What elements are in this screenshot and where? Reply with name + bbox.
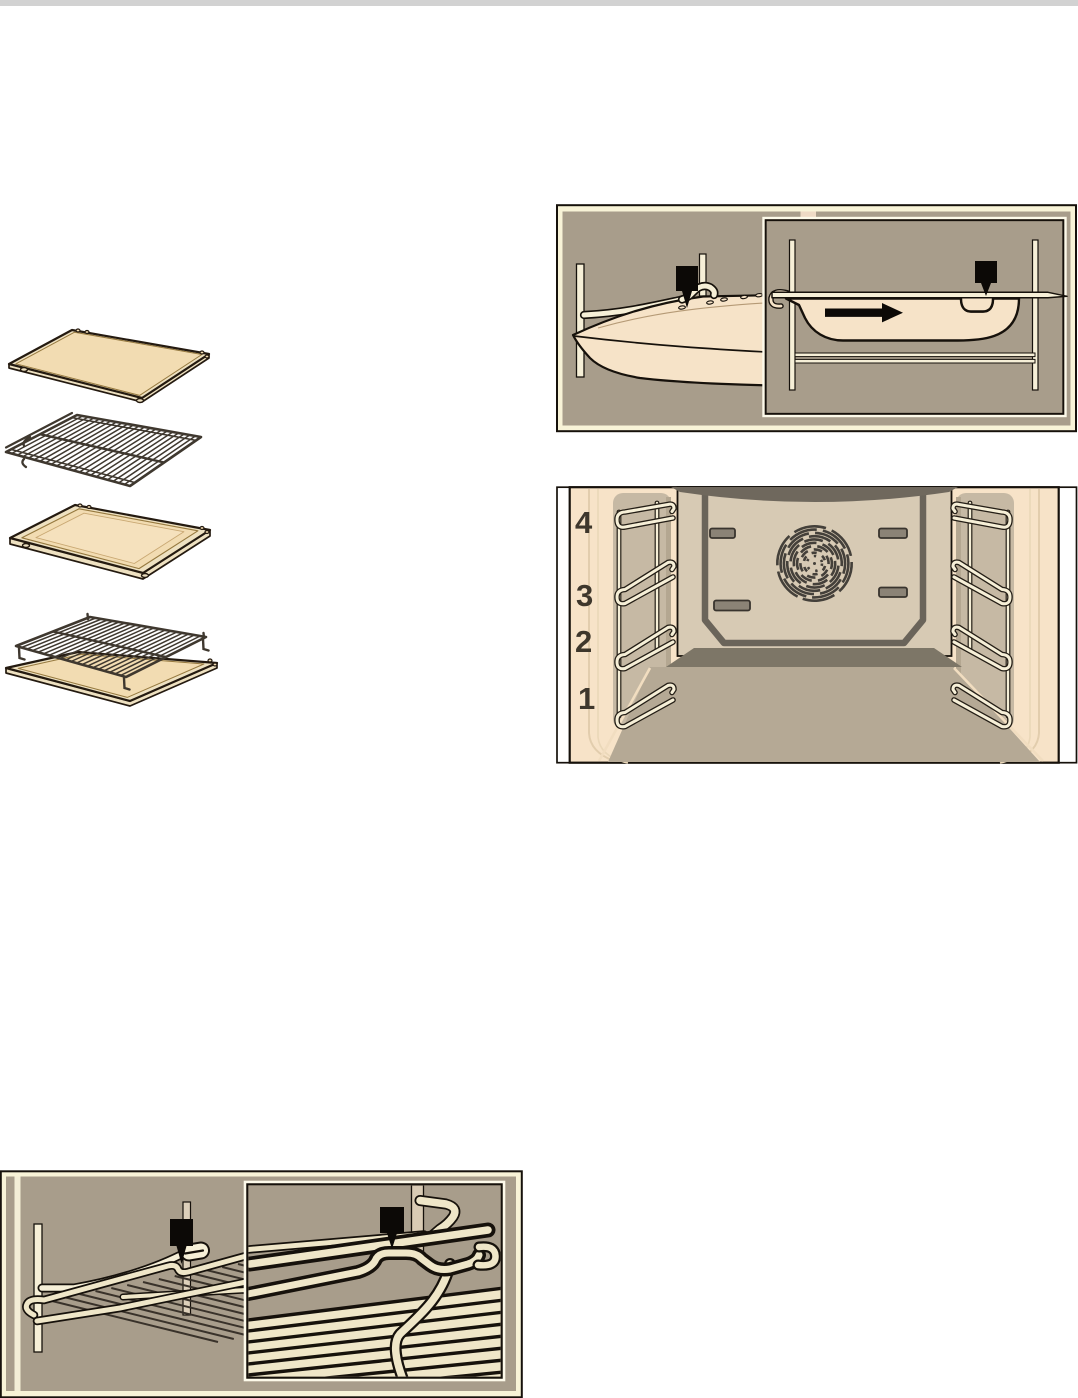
svg-text:4: 4 [575, 505, 593, 540]
svg-text:3: 3 [576, 578, 593, 613]
svg-text:2: 2 [575, 624, 592, 659]
svg-text:1: 1 [578, 681, 595, 716]
